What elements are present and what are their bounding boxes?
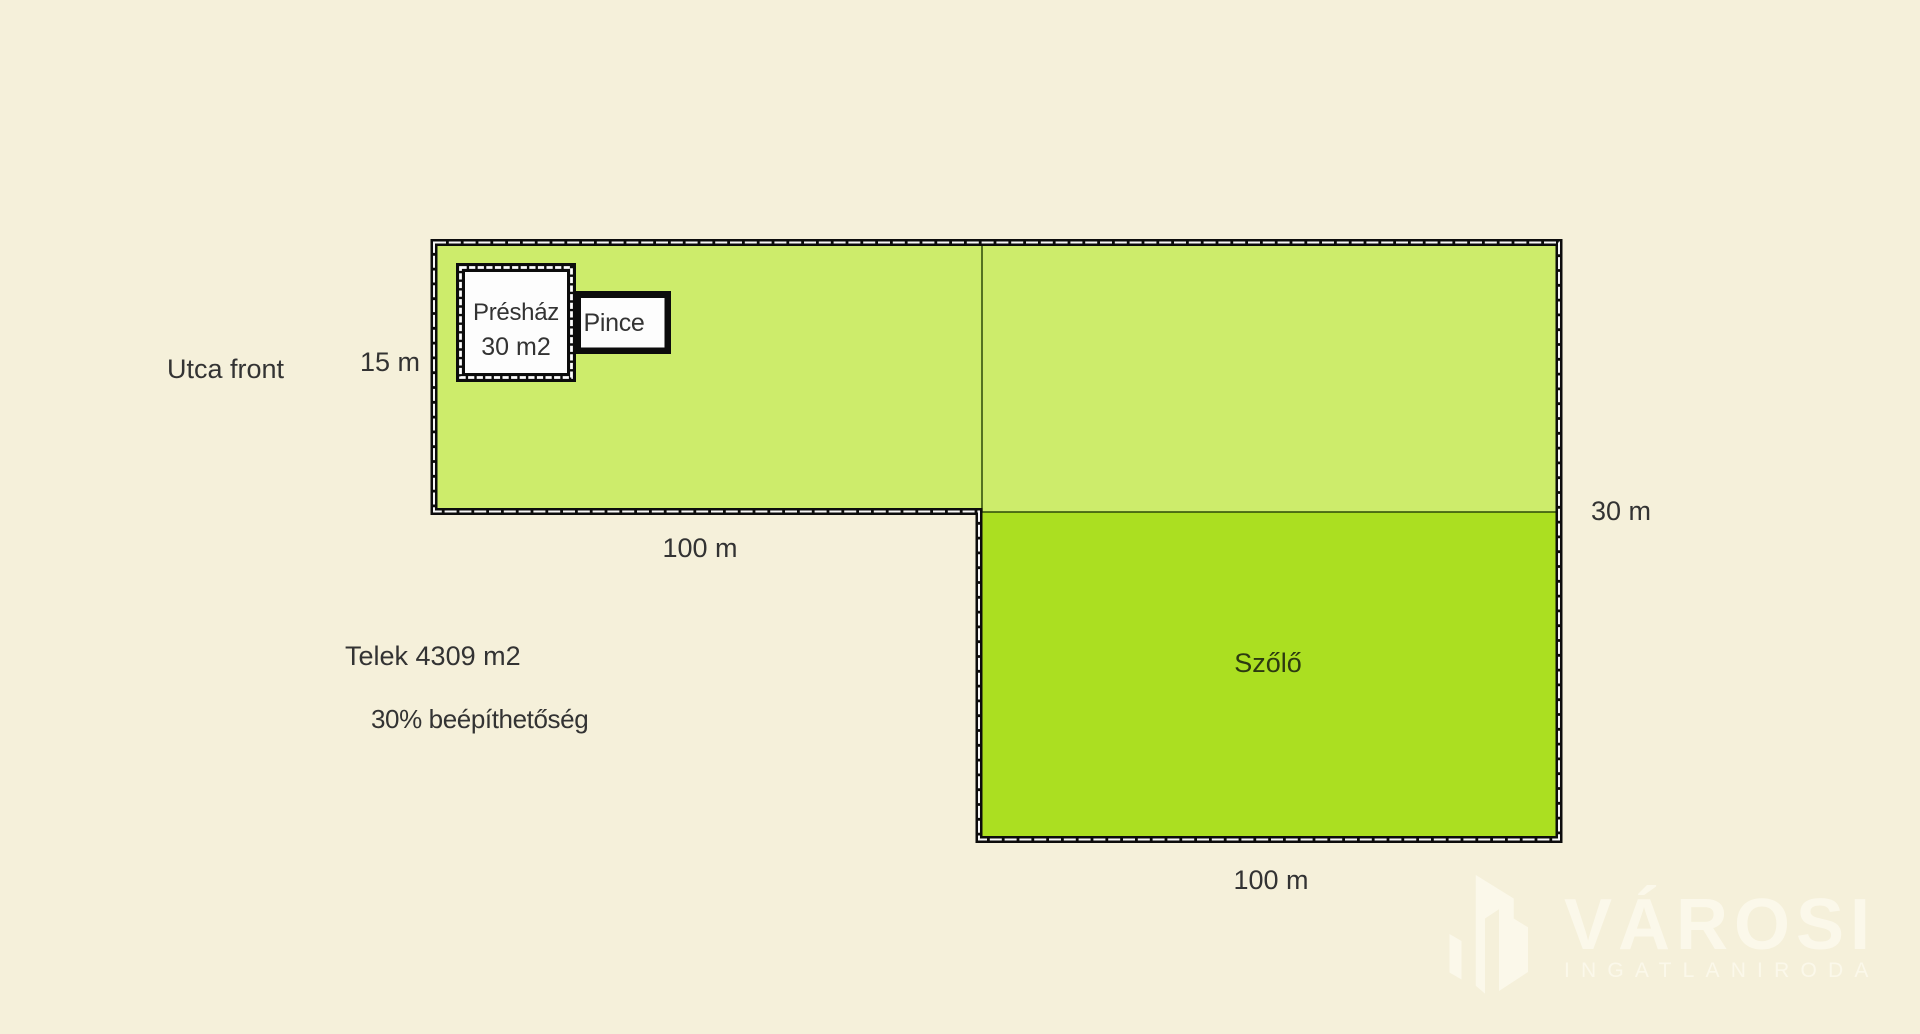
svg-text:100 m: 100 m: [1233, 865, 1308, 895]
svg-text:VÁROSI: VÁROSI: [1564, 885, 1876, 965]
svg-text:Pince: Pince: [583, 309, 644, 337]
svg-text:30 m: 30 m: [1591, 496, 1651, 526]
svg-text:Szőlő: Szőlő: [1234, 648, 1302, 678]
svg-text:Telek 4309 m2: Telek 4309 m2: [345, 641, 521, 671]
svg-text:15 m: 15 m: [360, 347, 420, 377]
svg-text:100 m: 100 m: [662, 533, 737, 563]
svg-text:30 m2: 30 m2: [481, 333, 550, 361]
svg-text:Utca front: Utca front: [167, 354, 285, 384]
svg-text:INGATLANIRODA: INGATLANIRODA: [1564, 959, 1880, 982]
svg-text:30% beépíthetőség: 30% beépíthetőség: [371, 704, 588, 734]
svg-text:Présház: Présház: [473, 299, 559, 326]
